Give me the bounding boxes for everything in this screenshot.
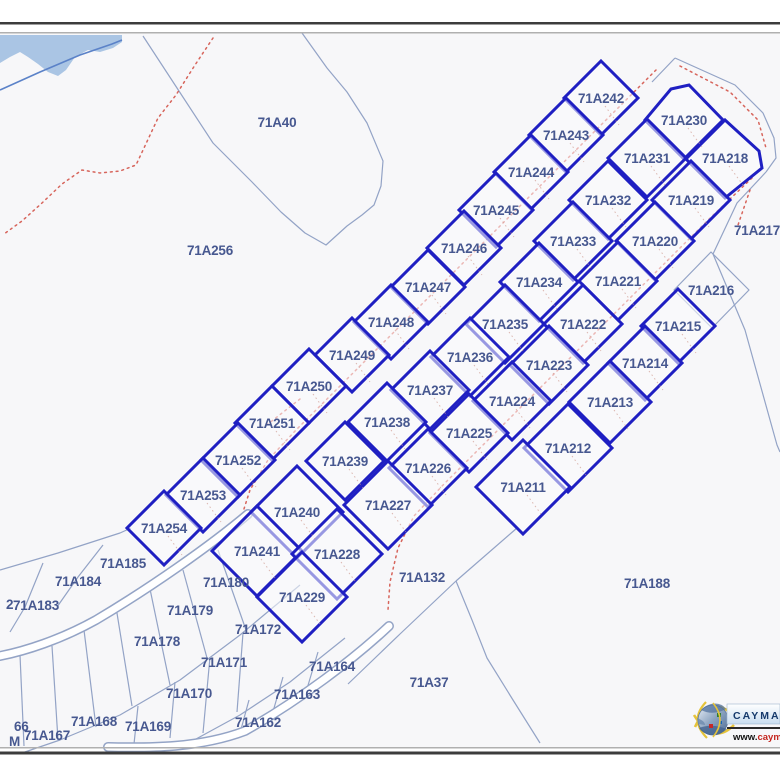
parcel-label-71A230: 71A230: [661, 113, 707, 128]
parcel-label-71A214: 71A214: [622, 356, 669, 371]
parcel-label-71A251: 71A251: [249, 416, 296, 431]
parcel-label-71A183: 71A183: [13, 598, 60, 613]
label-fragment-2: 2: [6, 597, 13, 612]
parcel-label-71A171: 71A171: [201, 655, 248, 670]
parcel-label-71A220: 71A220: [632, 234, 678, 249]
parcel-label-71A246: 71A246: [441, 241, 488, 256]
frame-top-inner: [0, 32, 780, 34]
parcel-label-71A221: 71A221: [595, 274, 642, 289]
parcel-label-71A164: 71A164: [309, 659, 356, 674]
parcel-label-71A236: 71A236: [447, 350, 494, 365]
parcel-label-71A240: 71A240: [274, 505, 320, 520]
parcel-label-71A222: 71A222: [560, 317, 606, 332]
parcel-label-71A216: 71A216: [688, 283, 735, 298]
parcel-label-71A232: 71A232: [585, 193, 631, 208]
parcel-label-71A231: 71A231: [624, 151, 671, 166]
parcel-label-71A132: 71A132: [399, 570, 445, 585]
parcel-label-71A178: 71A178: [134, 634, 181, 649]
parcel-label-71A188: 71A188: [624, 576, 671, 591]
parcel-label-71A239: 71A239: [322, 454, 368, 469]
parcel-label-71A223: 71A223: [526, 358, 573, 373]
parcel-label-71A170: 71A170: [166, 686, 212, 701]
parcel-label-71A215: 71A215: [655, 319, 702, 334]
parcel-label-71A163: 71A163: [274, 687, 321, 702]
logo-divider: [727, 727, 780, 729]
parcel-label-71A252: 71A252: [215, 453, 261, 468]
parcel-label-71A40: 71A40: [258, 115, 297, 130]
parcel-label-71A250: 71A250: [286, 379, 332, 394]
logo-url-text: www.caym: [732, 732, 780, 743]
map-page: 71A24271A24371A24471A24571A24671A24771A2…: [0, 0, 780, 780]
parcel-label-71A167: 71A167: [24, 728, 70, 743]
parcel-label-71A184: 71A184: [55, 574, 102, 589]
parcel-label-71A241: 71A241: [234, 544, 281, 559]
frame-bottom-outer: [0, 752, 780, 755]
parcel-label-71A212: 71A212: [545, 441, 591, 456]
parcel-label-71A244: 71A244: [508, 165, 555, 180]
parcel-label-71A185: 71A185: [100, 556, 147, 571]
parcel-label-71A224: 71A224: [489, 394, 536, 409]
parcel-label-71A168: 71A168: [71, 714, 118, 729]
parcel-label-71A242: 71A242: [578, 91, 624, 106]
parcel-label-71A179: 71A179: [167, 603, 213, 618]
logo-brand-text: CAYMAN: [733, 710, 780, 722]
parcel-label-71A37: 71A37: [410, 675, 449, 690]
frame-top-outer: [0, 22, 780, 25]
parcel-label-71A162: 71A162: [235, 715, 281, 730]
parcel-label-71A225: 71A225: [446, 426, 493, 441]
parcel-label-71A219: 71A219: [668, 193, 714, 208]
parcel-label-71A235: 71A235: [482, 317, 529, 332]
parcel-label-71A248: 71A248: [368, 315, 415, 330]
parcel-label-71A247: 71A247: [405, 280, 451, 295]
parcel-label-71A218: 71A218: [702, 151, 749, 166]
parcel-label-71A254: 71A254: [141, 521, 188, 536]
frame-bottom-inner: [0, 747, 780, 749]
cayman-logo: CAYMAN www.caym: [694, 702, 780, 743]
parcel-label-71A172: 71A172: [235, 622, 281, 637]
cadastral-map: 71A24271A24371A24471A24571A24671A24771A2…: [0, 0, 780, 780]
label-fragment-M: M: [9, 734, 20, 749]
parcel-label-71A249: 71A249: [329, 348, 375, 363]
parcel-label-71A253: 71A253: [180, 488, 227, 503]
parcel-label-71A238: 71A238: [364, 415, 411, 430]
parcel-label-71A243: 71A243: [543, 128, 590, 143]
label-fragment-66: 66: [14, 719, 29, 734]
parcel-label-71A229: 71A229: [279, 590, 325, 605]
parcel-label-71A213: 71A213: [587, 395, 634, 410]
parcel-label-71A237: 71A237: [407, 383, 453, 398]
parcel-label-71A211: 71A211: [500, 480, 546, 495]
parcel-label-71A234: 71A234: [516, 275, 563, 290]
map-layers: 71A24271A24371A24471A24571A24671A24771A2…: [0, 0, 780, 780]
parcel-label-71A180: 71A180: [203, 575, 249, 590]
parcel-label-71A217: 71A217: [734, 223, 780, 238]
parcel-label-71A245: 71A245: [473, 203, 520, 218]
parcel-label-71A228: 71A228: [314, 547, 361, 562]
parcel-label-71A256: 71A256: [187, 243, 234, 258]
parcel-label-71A226: 71A226: [405, 461, 452, 476]
parcel-label-71A169: 71A169: [125, 719, 171, 734]
parcel-label-71A233: 71A233: [550, 234, 597, 249]
parcel-label-71A227: 71A227: [365, 498, 411, 513]
